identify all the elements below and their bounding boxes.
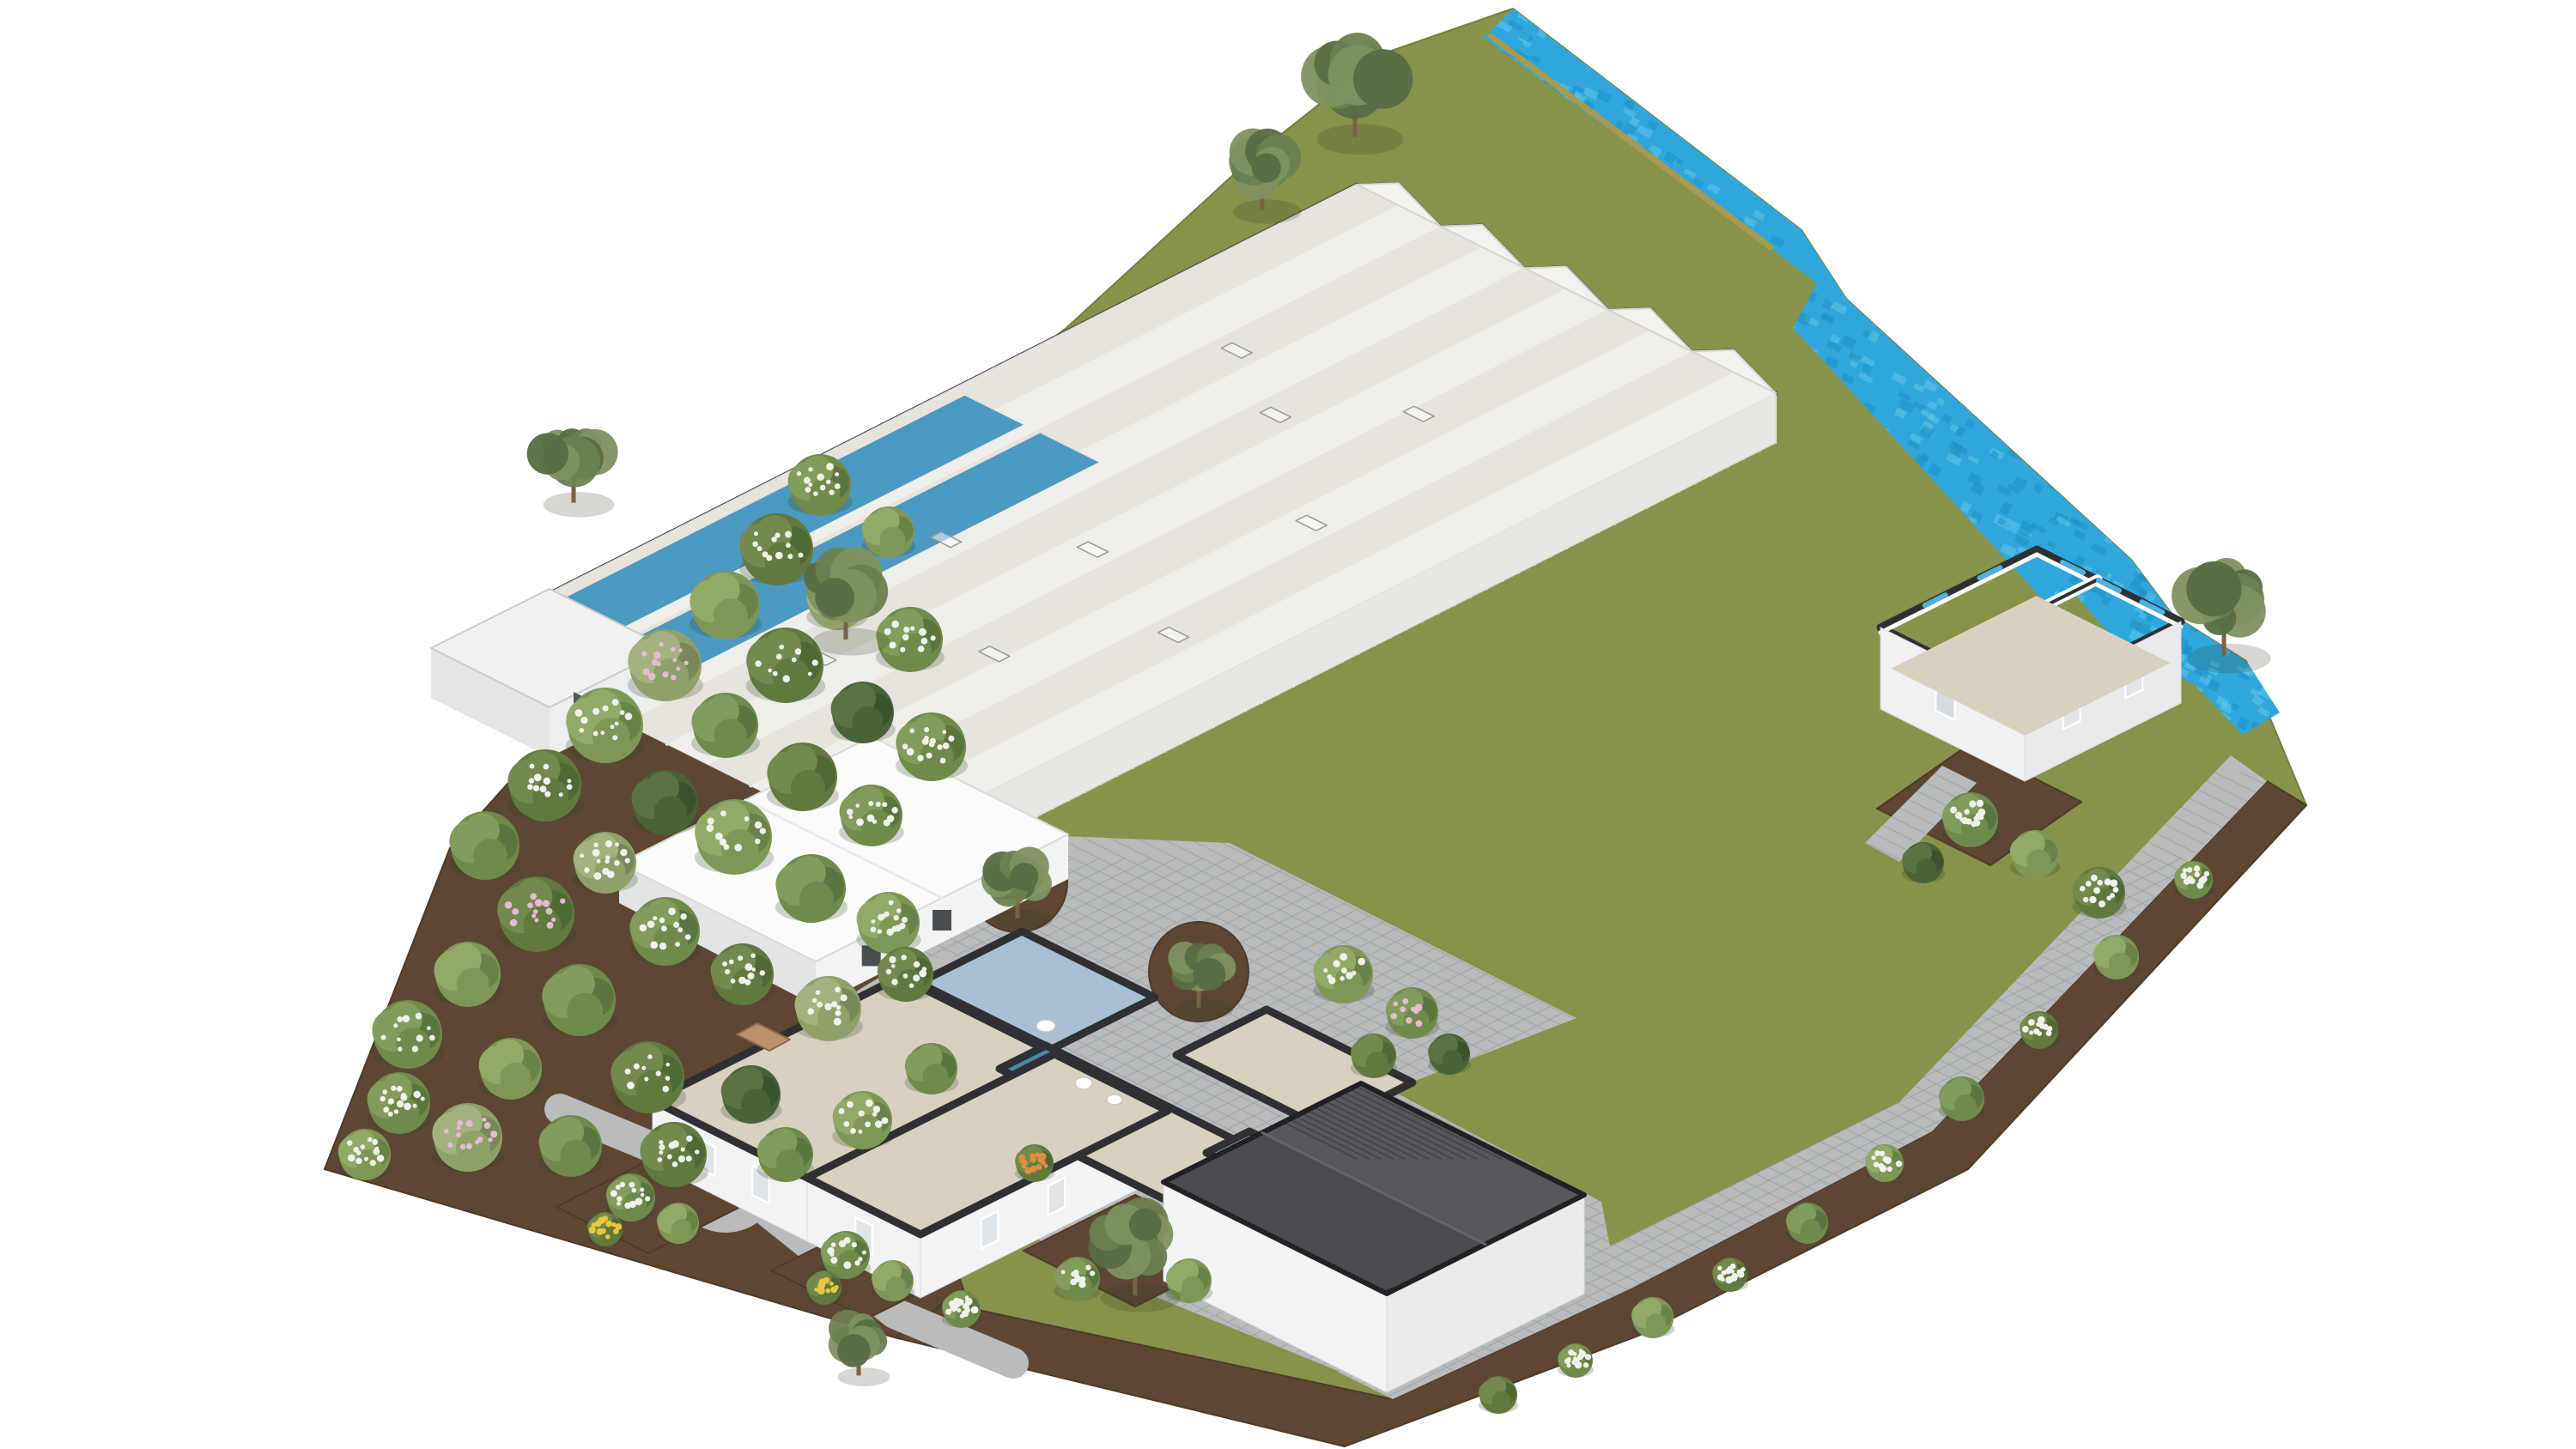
- flower-cluster: [614, 860, 620, 866]
- flower-cluster: [457, 1125, 461, 1130]
- flower-cluster: [594, 872, 602, 880]
- bush-foliage: [1443, 1050, 1463, 1070]
- flower-cluster: [529, 764, 534, 769]
- flower-cluster: [1730, 1275, 1737, 1282]
- flower-cluster: [673, 922, 679, 928]
- flower-cluster: [1579, 1350, 1586, 1357]
- flower-cluster: [547, 922, 554, 929]
- bush-foliage: [473, 839, 507, 873]
- flower-cluster: [965, 1298, 973, 1306]
- flower-cluster: [620, 710, 625, 715]
- flower-cluster: [397, 1100, 404, 1108]
- flower-cluster: [760, 970, 766, 976]
- flower-cluster: [416, 1013, 422, 1020]
- flower-cluster: [900, 647, 905, 652]
- flower-cluster: [827, 1247, 835, 1255]
- flower-cluster: [903, 973, 908, 979]
- flower-cluster: [731, 979, 736, 984]
- flower-cluster: [855, 803, 860, 808]
- flower-cluster: [1874, 1161, 1879, 1167]
- flower-cluster: [841, 994, 848, 1001]
- flower-cluster: [593, 843, 598, 847]
- flower-cluster: [672, 1161, 678, 1167]
- flower-cluster: [658, 1157, 663, 1162]
- flower-cluster: [400, 1094, 407, 1101]
- flower-cluster: [945, 1309, 951, 1315]
- flower-cluster: [971, 1307, 979, 1314]
- flower-cluster: [644, 1076, 648, 1081]
- flower-cluster: [675, 942, 680, 947]
- flower-cluster: [605, 859, 609, 864]
- flower-cluster: [909, 984, 914, 989]
- flower-cluster: [391, 1086, 396, 1091]
- flower-cluster: [2194, 871, 2199, 876]
- flower-cluster: [960, 1314, 964, 1319]
- bush-foliage: [923, 1064, 949, 1089]
- bush-foliage: [1954, 1094, 1977, 1117]
- tree-shadow: [544, 492, 615, 517]
- flower-cluster: [813, 491, 818, 496]
- flower-cluster: [397, 1038, 401, 1042]
- flower-cluster: [805, 487, 811, 493]
- flower-cluster: [1400, 1006, 1406, 1012]
- tree: [804, 548, 890, 656]
- flower-cluster: [584, 867, 589, 872]
- flower-cluster: [825, 1288, 830, 1294]
- flower-cluster: [2198, 877, 2205, 884]
- flower-cluster: [540, 785, 547, 792]
- flower-cluster: [665, 1063, 670, 1067]
- flower-cluster: [831, 1001, 837, 1007]
- flower-cluster: [1414, 1007, 1419, 1011]
- flower-cluster: [808, 482, 812, 487]
- flower-cluster: [954, 1300, 961, 1307]
- flower-cluster: [816, 990, 821, 995]
- flower-cluster: [393, 1023, 398, 1028]
- flower-cluster: [881, 913, 886, 919]
- flower-cluster: [795, 648, 801, 654]
- flower-cluster: [1022, 1160, 1028, 1166]
- shed-window: [933, 910, 951, 931]
- flower-cluster: [843, 1261, 851, 1269]
- flower-cluster: [543, 900, 550, 906]
- flower-cluster: [895, 925, 902, 931]
- flower-cluster: [686, 1136, 692, 1142]
- flower-cluster: [1090, 1270, 1095, 1276]
- flower-cluster: [768, 669, 772, 673]
- flower-cluster: [647, 1054, 653, 1059]
- flower-cluster: [534, 919, 538, 923]
- tree-shadow: [1175, 999, 1233, 1020]
- flower-cluster: [831, 1242, 836, 1247]
- flower-cluster: [2028, 1019, 2035, 1026]
- flower-cluster: [871, 927, 877, 933]
- flower-cluster: [1402, 998, 1408, 1004]
- flower-cluster: [1573, 1352, 1577, 1356]
- flower-cluster: [922, 738, 929, 745]
- flower-cluster: [913, 974, 920, 981]
- flower-cluster: [891, 979, 897, 985]
- flower-cluster: [1567, 1363, 1571, 1367]
- flower-cluster: [792, 658, 797, 663]
- flower-cluster: [370, 1160, 376, 1166]
- flower-cluster: [421, 1096, 425, 1100]
- flower-cluster: [881, 1117, 888, 1124]
- flower-cluster: [579, 728, 584, 733]
- flower-cluster: [929, 742, 935, 748]
- flower-cluster: [2029, 1030, 2033, 1034]
- flower-cluster: [1738, 1271, 1745, 1278]
- flower-cluster: [2091, 875, 2098, 882]
- flower-cluster: [1976, 813, 1982, 819]
- flower-cluster: [373, 1149, 380, 1155]
- flower-cluster: [835, 472, 839, 476]
- flower-cluster: [890, 641, 896, 648]
- tree-foliage: [837, 1334, 871, 1367]
- tree-foliage: [1252, 154, 1281, 183]
- flower-cluster: [671, 647, 675, 652]
- bush-foliage: [1801, 1219, 1821, 1240]
- flower-cluster: [755, 839, 761, 845]
- flower-cluster: [2106, 896, 2111, 901]
- bathroom-fixture: [1107, 1094, 1122, 1105]
- tree-foliage: [527, 433, 568, 474]
- flower-cluster: [2089, 896, 2096, 903]
- flower-cluster: [824, 1003, 832, 1010]
- flower-cluster: [919, 970, 927, 978]
- tree-shadow: [993, 910, 1052, 931]
- flower-cluster: [382, 1089, 387, 1094]
- flower-cluster: [876, 802, 881, 807]
- bush-foliage: [714, 718, 747, 751]
- flower-cluster: [873, 1106, 880, 1113]
- flower-cluster: [551, 918, 556, 922]
- flower-cluster: [659, 1144, 665, 1150]
- flower-cluster: [2039, 1023, 2045, 1029]
- flower-cluster: [1717, 1274, 1723, 1280]
- flower-cluster: [397, 1016, 403, 1022]
- flower-cluster: [1971, 822, 1976, 827]
- flower-cluster: [580, 717, 587, 724]
- flower-cluster: [829, 489, 834, 494]
- flower-cluster: [403, 1015, 410, 1022]
- flower-cluster: [1340, 976, 1345, 981]
- flower-cluster: [627, 1082, 635, 1089]
- flower-cluster: [1415, 1020, 1422, 1027]
- flower-cluster: [427, 1026, 431, 1030]
- flower-cluster: [625, 1069, 631, 1075]
- flower-cluster: [830, 1286, 837, 1293]
- flower-cluster: [1730, 1264, 1735, 1269]
- flower-cluster: [2112, 887, 2118, 893]
- flower-cluster: [607, 870, 615, 878]
- bush-foliage: [2109, 953, 2131, 975]
- tree-shadow: [1233, 200, 1301, 224]
- flower-cluster: [640, 925, 647, 932]
- flower-cluster: [875, 1120, 883, 1128]
- flower-cluster: [656, 1071, 661, 1076]
- flower-cluster: [1977, 800, 1984, 807]
- flower-cluster: [835, 1010, 841, 1016]
- flower-cluster: [884, 820, 890, 827]
- flower-cluster: [1390, 1013, 1396, 1019]
- flower-cluster: [872, 919, 876, 924]
- bush-foliage: [663, 1148, 696, 1180]
- bush-foliage: [1182, 1276, 1204, 1299]
- flower-cluster: [659, 1140, 663, 1144]
- flower-cluster: [818, 1283, 825, 1290]
- flower-cluster: [634, 1064, 640, 1070]
- flower-cluster: [886, 929, 893, 936]
- flower-cluster: [678, 648, 683, 652]
- flower-cluster: [786, 543, 791, 548]
- flower-cluster: [625, 858, 630, 863]
- flower-cluster: [762, 551, 769, 557]
- flower-cluster: [720, 810, 726, 816]
- flower-cluster: [1036, 1164, 1042, 1170]
- flower-cluster: [1074, 1276, 1081, 1282]
- flower-cluster: [482, 1118, 486, 1122]
- flower-cluster: [671, 1140, 679, 1148]
- flower-cluster: [826, 480, 831, 485]
- tree: [1168, 942, 1236, 1020]
- flower-cluster: [750, 953, 756, 958]
- flower-cluster: [820, 485, 826, 491]
- flower-cluster: [826, 463, 834, 470]
- flower-cluster: [475, 1140, 479, 1144]
- flower-cluster: [678, 1155, 685, 1162]
- flower-cluster: [529, 778, 534, 783]
- flower-cluster: [645, 1196, 650, 1201]
- bush-foliage: [791, 770, 825, 804]
- flower-cluster: [2110, 879, 2117, 887]
- bush-foliage: [1917, 858, 1937, 879]
- bush-foliage: [560, 1140, 591, 1171]
- flower-cluster: [368, 1137, 372, 1142]
- flower-cluster: [605, 1234, 611, 1240]
- flower-cluster: [807, 1008, 814, 1015]
- flower-cluster: [886, 969, 891, 974]
- flower-cluster: [372, 1139, 378, 1145]
- flower-cluster: [659, 642, 663, 646]
- flower-cluster: [597, 859, 601, 864]
- flower-cluster: [1885, 1157, 1892, 1164]
- flower-cluster: [1878, 1163, 1884, 1169]
- flower-cluster: [544, 764, 550, 770]
- flower-cluster: [2083, 897, 2088, 902]
- flower-cluster: [776, 654, 782, 660]
- flower-cluster: [650, 942, 658, 949]
- flower-cluster: [444, 1129, 449, 1134]
- flower-cluster: [847, 809, 853, 815]
- tree-foliage: [1011, 863, 1039, 891]
- flower-cluster: [1044, 1164, 1048, 1168]
- flower-cluster: [844, 1237, 851, 1244]
- flower-cluster: [388, 1098, 394, 1104]
- flower-cluster: [903, 627, 909, 633]
- bush-foliage: [500, 1063, 531, 1094]
- flower-cluster: [942, 730, 946, 734]
- flower-cluster: [2187, 867, 2193, 873]
- flower-cluster: [757, 546, 762, 551]
- flower-cluster: [388, 1112, 393, 1117]
- flower-cluster: [924, 727, 929, 732]
- tree-shadow: [812, 628, 890, 656]
- flower-cluster: [535, 899, 543, 906]
- flower-cluster: [965, 1307, 970, 1313]
- flower-cluster: [641, 1066, 646, 1070]
- flower-cluster: [1340, 953, 1347, 961]
- flower-cluster: [858, 1257, 862, 1261]
- bush-foliage: [457, 967, 489, 1000]
- tree-foliage: [2186, 561, 2241, 616]
- flower-cluster: [429, 1035, 435, 1041]
- flower-cluster: [773, 671, 778, 676]
- flower-cluster: [466, 1120, 473, 1127]
- flower-cluster: [546, 908, 553, 915]
- flower-cluster: [695, 1149, 699, 1154]
- flower-cluster: [512, 908, 519, 915]
- flower-cluster: [1024, 1167, 1031, 1174]
- flower-cluster: [631, 1188, 636, 1193]
- flower-cluster: [1085, 1264, 1091, 1270]
- flower-cluster: [1406, 1017, 1413, 1024]
- flower-cluster: [589, 1227, 596, 1234]
- flower-cluster: [597, 1228, 604, 1235]
- flower-cluster: [747, 973, 754, 979]
- flower-cluster: [889, 900, 894, 906]
- flower-cluster: [1717, 1266, 1722, 1270]
- flower-cluster: [775, 552, 783, 560]
- flower-cluster: [839, 1108, 845, 1114]
- flower-cluster: [738, 955, 743, 961]
- flower-cluster: [568, 779, 572, 783]
- flower-cluster: [544, 791, 550, 797]
- flower-cluster: [615, 842, 619, 846]
- flower-cluster: [722, 961, 727, 967]
- flower-cluster: [862, 1251, 866, 1255]
- flower-cluster: [629, 1182, 635, 1188]
- flower-cluster: [1352, 971, 1356, 975]
- flower-cluster: [760, 828, 766, 834]
- flower-cluster: [348, 1155, 355, 1161]
- flower-cluster: [641, 1193, 645, 1197]
- flower-cluster: [1959, 817, 1964, 822]
- flower-cluster: [615, 1223, 622, 1230]
- bush-foliage: [1492, 1391, 1510, 1410]
- flower-cluster: [620, 849, 627, 856]
- flower-cluster: [868, 801, 873, 806]
- flower-cluster: [2194, 865, 2200, 871]
- flower-cluster: [460, 1144, 466, 1150]
- flower-cluster: [668, 907, 676, 915]
- floor-plan-3d-svg: [0, 0, 2576, 1449]
- flower-cluster: [592, 849, 600, 857]
- flower-cluster: [603, 706, 609, 712]
- flower-cluster: [620, 1182, 625, 1187]
- flower-cluster: [729, 960, 734, 965]
- flower-cluster: [684, 661, 689, 665]
- flower-cluster: [652, 659, 659, 666]
- flower-cluster: [902, 634, 909, 640]
- flower-cluster: [640, 1187, 644, 1191]
- flower-cluster: [2086, 881, 2092, 887]
- flower-cluster: [787, 554, 793, 559]
- flower-cluster: [884, 628, 891, 635]
- flower-cluster: [412, 1046, 418, 1052]
- flower-cluster: [1030, 1153, 1035, 1158]
- flower-cluster: [686, 1155, 692, 1161]
- flower-cluster: [734, 844, 742, 852]
- flower-cluster: [671, 675, 676, 680]
- flower-cluster: [1327, 974, 1333, 979]
- flower-cluster: [2080, 886, 2085, 891]
- flower-cluster: [797, 471, 801, 476]
- bush-foliage: [524, 906, 562, 944]
- flower-cluster: [817, 1002, 823, 1008]
- flower-cluster: [775, 533, 780, 538]
- flower-cluster: [1573, 1356, 1577, 1361]
- flower-cluster: [902, 743, 908, 749]
- bush-foliage: [773, 658, 811, 695]
- flower-cluster: [829, 1282, 834, 1286]
- flower-cluster: [856, 818, 864, 826]
- flower-cluster: [665, 1076, 671, 1081]
- flower-cluster: [854, 1260, 860, 1265]
- flower-cluster: [635, 1197, 643, 1205]
- flower-cluster: [918, 646, 925, 652]
- flower-cluster: [1333, 961, 1340, 967]
- flower-cluster: [1741, 1267, 1745, 1271]
- flower-cluster: [605, 840, 612, 847]
- flower-cluster: [505, 901, 513, 909]
- flower-cluster: [843, 1121, 849, 1127]
- flower-cluster: [1567, 1357, 1571, 1361]
- flower-cluster: [1061, 1270, 1066, 1275]
- flower-cluster: [612, 735, 617, 740]
- flower-cluster: [412, 1104, 416, 1108]
- flower-cluster: [1964, 809, 1969, 815]
- tree-foliage: [1193, 958, 1225, 991]
- flower-cluster: [527, 902, 533, 908]
- flower-cluster: [355, 1158, 361, 1164]
- flower-cluster: [532, 913, 536, 918]
- flower-cluster: [830, 1257, 837, 1264]
- flower-cluster: [882, 802, 887, 807]
- flower-cluster: [625, 712, 633, 720]
- flower-cluster: [835, 483, 841, 489]
- flower-cluster: [680, 913, 687, 920]
- flower-cluster: [852, 1242, 857, 1247]
- bush-foliage: [799, 882, 834, 916]
- bush-foliage: [2026, 849, 2050, 873]
- bush-foliage: [654, 796, 687, 828]
- flower-cluster: [1341, 967, 1347, 973]
- flower-cluster: [659, 1150, 663, 1155]
- flower-cluster: [603, 1216, 608, 1221]
- tree-shadow: [1317, 124, 1404, 155]
- flower-cluster: [347, 1140, 352, 1145]
- bush-foliage: [886, 1276, 907, 1297]
- flower-cluster: [2187, 876, 2193, 882]
- bush-foliage: [714, 598, 748, 633]
- flower-cluster: [416, 1034, 423, 1041]
- flower-cluster: [878, 929, 883, 934]
- tree-shadow: [1100, 1283, 1181, 1312]
- flower-cluster: [611, 724, 615, 729]
- flower-cluster: [808, 467, 812, 471]
- flower-cluster: [534, 773, 542, 781]
